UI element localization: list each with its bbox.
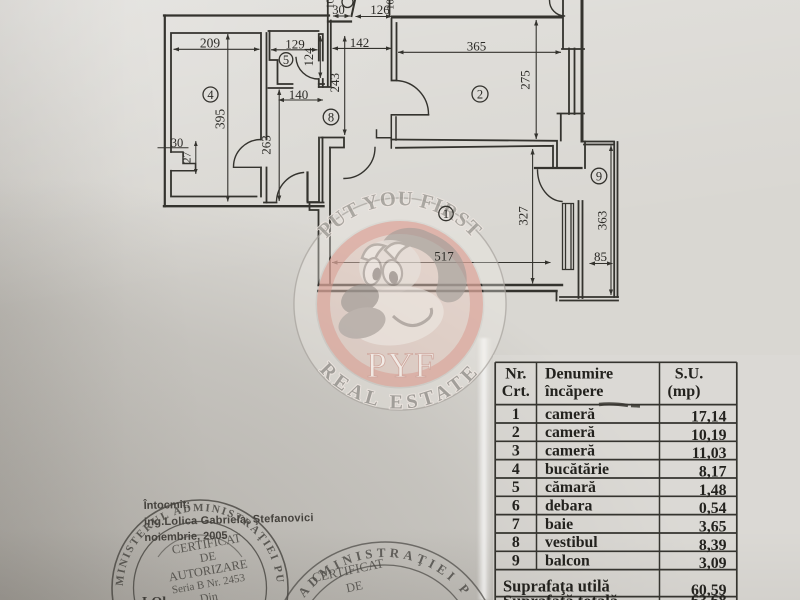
svg-text:debara: debara — [545, 497, 592, 514]
svg-text:1,48: 1,48 — [699, 482, 727, 499]
svg-text:124: 124 — [302, 47, 316, 67]
svg-text:DE: DE — [345, 578, 365, 595]
svg-text:bucătărie: bucătărie — [545, 461, 609, 478]
svg-text:6: 6 — [512, 497, 520, 514]
svg-text:4: 4 — [207, 88, 214, 102]
svg-text:1: 1 — [512, 406, 520, 423]
svg-text:LOl: LOl — [142, 595, 166, 600]
svg-text:vestibul: vestibul — [545, 534, 598, 551]
svg-text:3,65: 3,65 — [699, 519, 727, 536]
svg-text:9: 9 — [512, 552, 520, 569]
svg-text:9: 9 — [596, 170, 602, 184]
svg-text:Suprafaţa utilă: Suprafaţa utilă — [503, 577, 610, 596]
svg-text:ADMINISTRAŢIEI P: ADMINISTRAŢIEI P — [295, 545, 475, 600]
svg-text:balcon: balcon — [545, 552, 590, 569]
svg-text:517: 517 — [434, 249, 454, 264]
svg-text:85: 85 — [594, 249, 607, 264]
svg-text:8: 8 — [328, 111, 334, 125]
svg-text:363: 363 — [595, 211, 610, 231]
svg-text:129: 129 — [285, 37, 305, 52]
svg-text:3: 3 — [512, 442, 520, 459]
svg-text:4: 4 — [512, 461, 520, 478]
svg-text:142: 142 — [350, 35, 370, 50]
svg-text:Crt.: Crt. — [502, 383, 530, 400]
svg-text:140: 140 — [289, 87, 309, 102]
svg-text:Nr.: Nr. — [505, 366, 526, 383]
svg-text:275: 275 — [518, 70, 533, 90]
svg-text:7: 7 — [512, 516, 520, 533]
svg-text:încăpere: încăpere — [544, 383, 603, 400]
svg-text:60,59: 60,59 — [691, 582, 727, 599]
svg-text:0,54: 0,54 — [699, 500, 727, 517]
svg-text:Din: Din — [199, 589, 219, 600]
svg-text:263: 263 — [259, 135, 274, 155]
svg-text:Seria B Nr. 2453: Seria B Nr. 2453 — [171, 572, 246, 597]
svg-text:395: 395 — [213, 109, 228, 130]
svg-text:1: 1 — [443, 207, 449, 221]
svg-text:2: 2 — [512, 424, 520, 441]
svg-text:MINISTERUL ADMINISTRAŢIEI PU: MINISTERUL ADMINISTRAŢIEI PU — [114, 502, 286, 586]
svg-text:baie: baie — [545, 516, 573, 533]
svg-text:Denumire: Denumire — [545, 366, 613, 383]
svg-text:5: 5 — [283, 53, 289, 67]
svg-text:8: 8 — [512, 534, 520, 551]
svg-text:10: 10 — [385, 0, 397, 10]
svg-text:10: 10 — [325, 0, 337, 9]
svg-text:8,17: 8,17 — [699, 464, 727, 481]
svg-text:5: 5 — [512, 479, 520, 496]
svg-text:cameră: cameră — [545, 424, 595, 441]
svg-text:PYF: PYF — [366, 345, 435, 385]
svg-text:Întocmit:: Întocmit: — [142, 498, 190, 512]
svg-text:S.U.: S.U. — [675, 366, 703, 383]
svg-text:REAL ESTATE: REAL ESTATE — [315, 358, 484, 413]
svg-text:CERTIFICAT: CERTIFICAT — [311, 555, 385, 585]
svg-text:11,03: 11,03 — [692, 445, 727, 462]
svg-text:30: 30 — [332, 3, 345, 17]
svg-text:3,09: 3,09 — [699, 555, 727, 572]
svg-text:(mp): (mp) — [668, 383, 701, 400]
svg-text:209: 209 — [200, 36, 221, 51]
svg-text:PUT YOU FIRST: PUT YOU FIRST — [314, 188, 486, 242]
svg-text:27: 27 — [182, 152, 194, 164]
svg-text:cameră: cameră — [545, 406, 595, 423]
svg-text:365: 365 — [467, 39, 487, 54]
svg-text:cămară: cămară — [545, 479, 596, 496]
svg-text:cameră: cameră — [545, 442, 595, 459]
svg-text:CERTIFICAT: CERTIFICAT — [171, 531, 243, 557]
svg-text:Suprafaţă totală: Suprafaţă totală — [503, 592, 618, 600]
svg-text:2: 2 — [477, 88, 483, 102]
svg-text:AUTORIZARE: AUTORIZARE — [168, 557, 249, 585]
svg-text:10,19: 10,19 — [691, 427, 727, 444]
svg-text:327: 327 — [516, 206, 531, 226]
svg-text:126: 126 — [370, 2, 390, 17]
svg-text:DE: DE — [199, 549, 217, 566]
svg-text:30: 30 — [171, 136, 184, 150]
svg-text:17,14: 17,14 — [691, 409, 727, 426]
svg-text:243: 243 — [327, 73, 342, 93]
svg-text:63,68: 63,68 — [691, 593, 727, 600]
svg-text:noiembrie, 2005: noiembrie, 2005 — [144, 530, 227, 544]
svg-text:ing.Lolica Gabriela, Ştefanovi: ing.Lolica Gabriela, Ştefanovici — [144, 512, 314, 528]
svg-text:8,39: 8,39 — [699, 537, 727, 554]
